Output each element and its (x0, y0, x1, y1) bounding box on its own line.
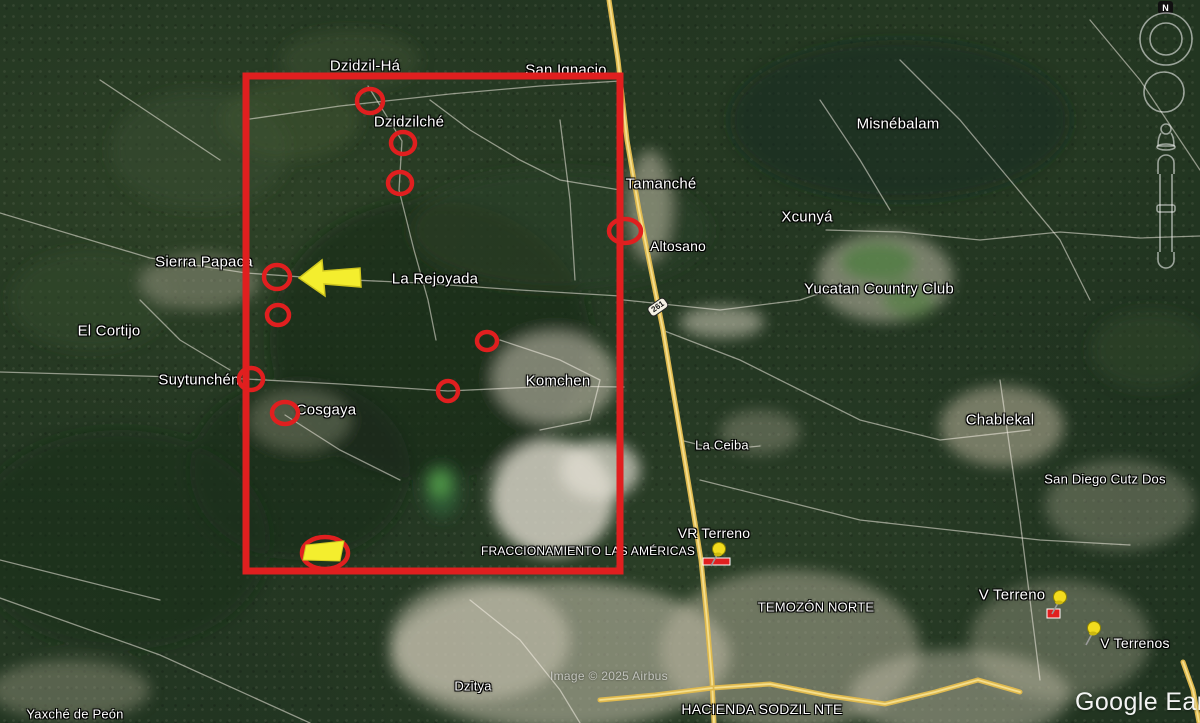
v-terrenos-pin[interactable] (1086, 622, 1101, 646)
annotation-circle (272, 402, 298, 424)
annotation-circle (477, 332, 497, 350)
annotation-circle (438, 381, 458, 401)
annotation-circle (391, 132, 415, 154)
focus-area-rectangle (246, 76, 620, 571)
imagery-attribution: Image © 2025 Airbus (550, 669, 668, 683)
annotation-circles (239, 89, 641, 424)
north-indicator-badge[interactable]: N (1158, 1, 1173, 14)
google-earth-logo: Google Earth (1075, 688, 1200, 717)
annotation-circle (267, 305, 289, 325)
annotation-circle (357, 89, 383, 113)
annotation-circle (264, 265, 290, 289)
red-bar-marker (703, 558, 730, 565)
annotation-circle (609, 219, 641, 243)
annotations-layer (0, 0, 1200, 723)
yellow-arrow-annotation (299, 260, 361, 296)
annotation-circle (388, 172, 412, 194)
map-viewport[interactable]: Dzidzil-HáSan IgnacioDzidzilchéMisnébala… (0, 0, 1200, 723)
